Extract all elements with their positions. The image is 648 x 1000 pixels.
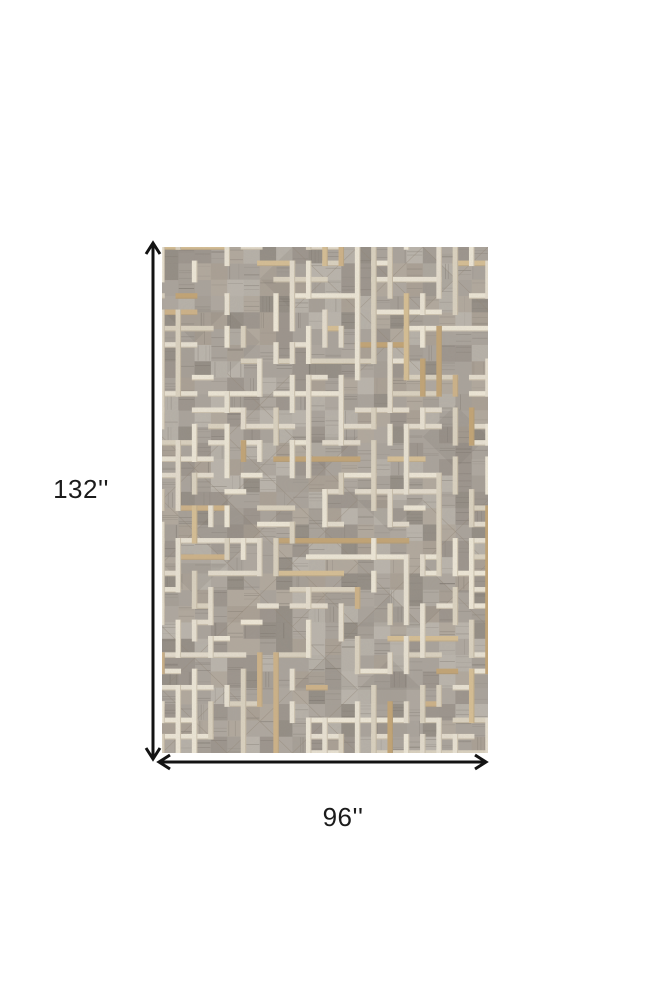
rug-pattern <box>162 247 488 753</box>
product-dimension-figure: 132'' 96'' <box>0 0 648 1000</box>
rug-image <box>162 247 488 753</box>
width-dimension-arrow <box>153 750 493 774</box>
width-dimension-label: 96'' <box>288 802 398 832</box>
height-dimension-arrow <box>141 237 165 765</box>
height-dimension-label: 132'' <box>26 474 136 504</box>
